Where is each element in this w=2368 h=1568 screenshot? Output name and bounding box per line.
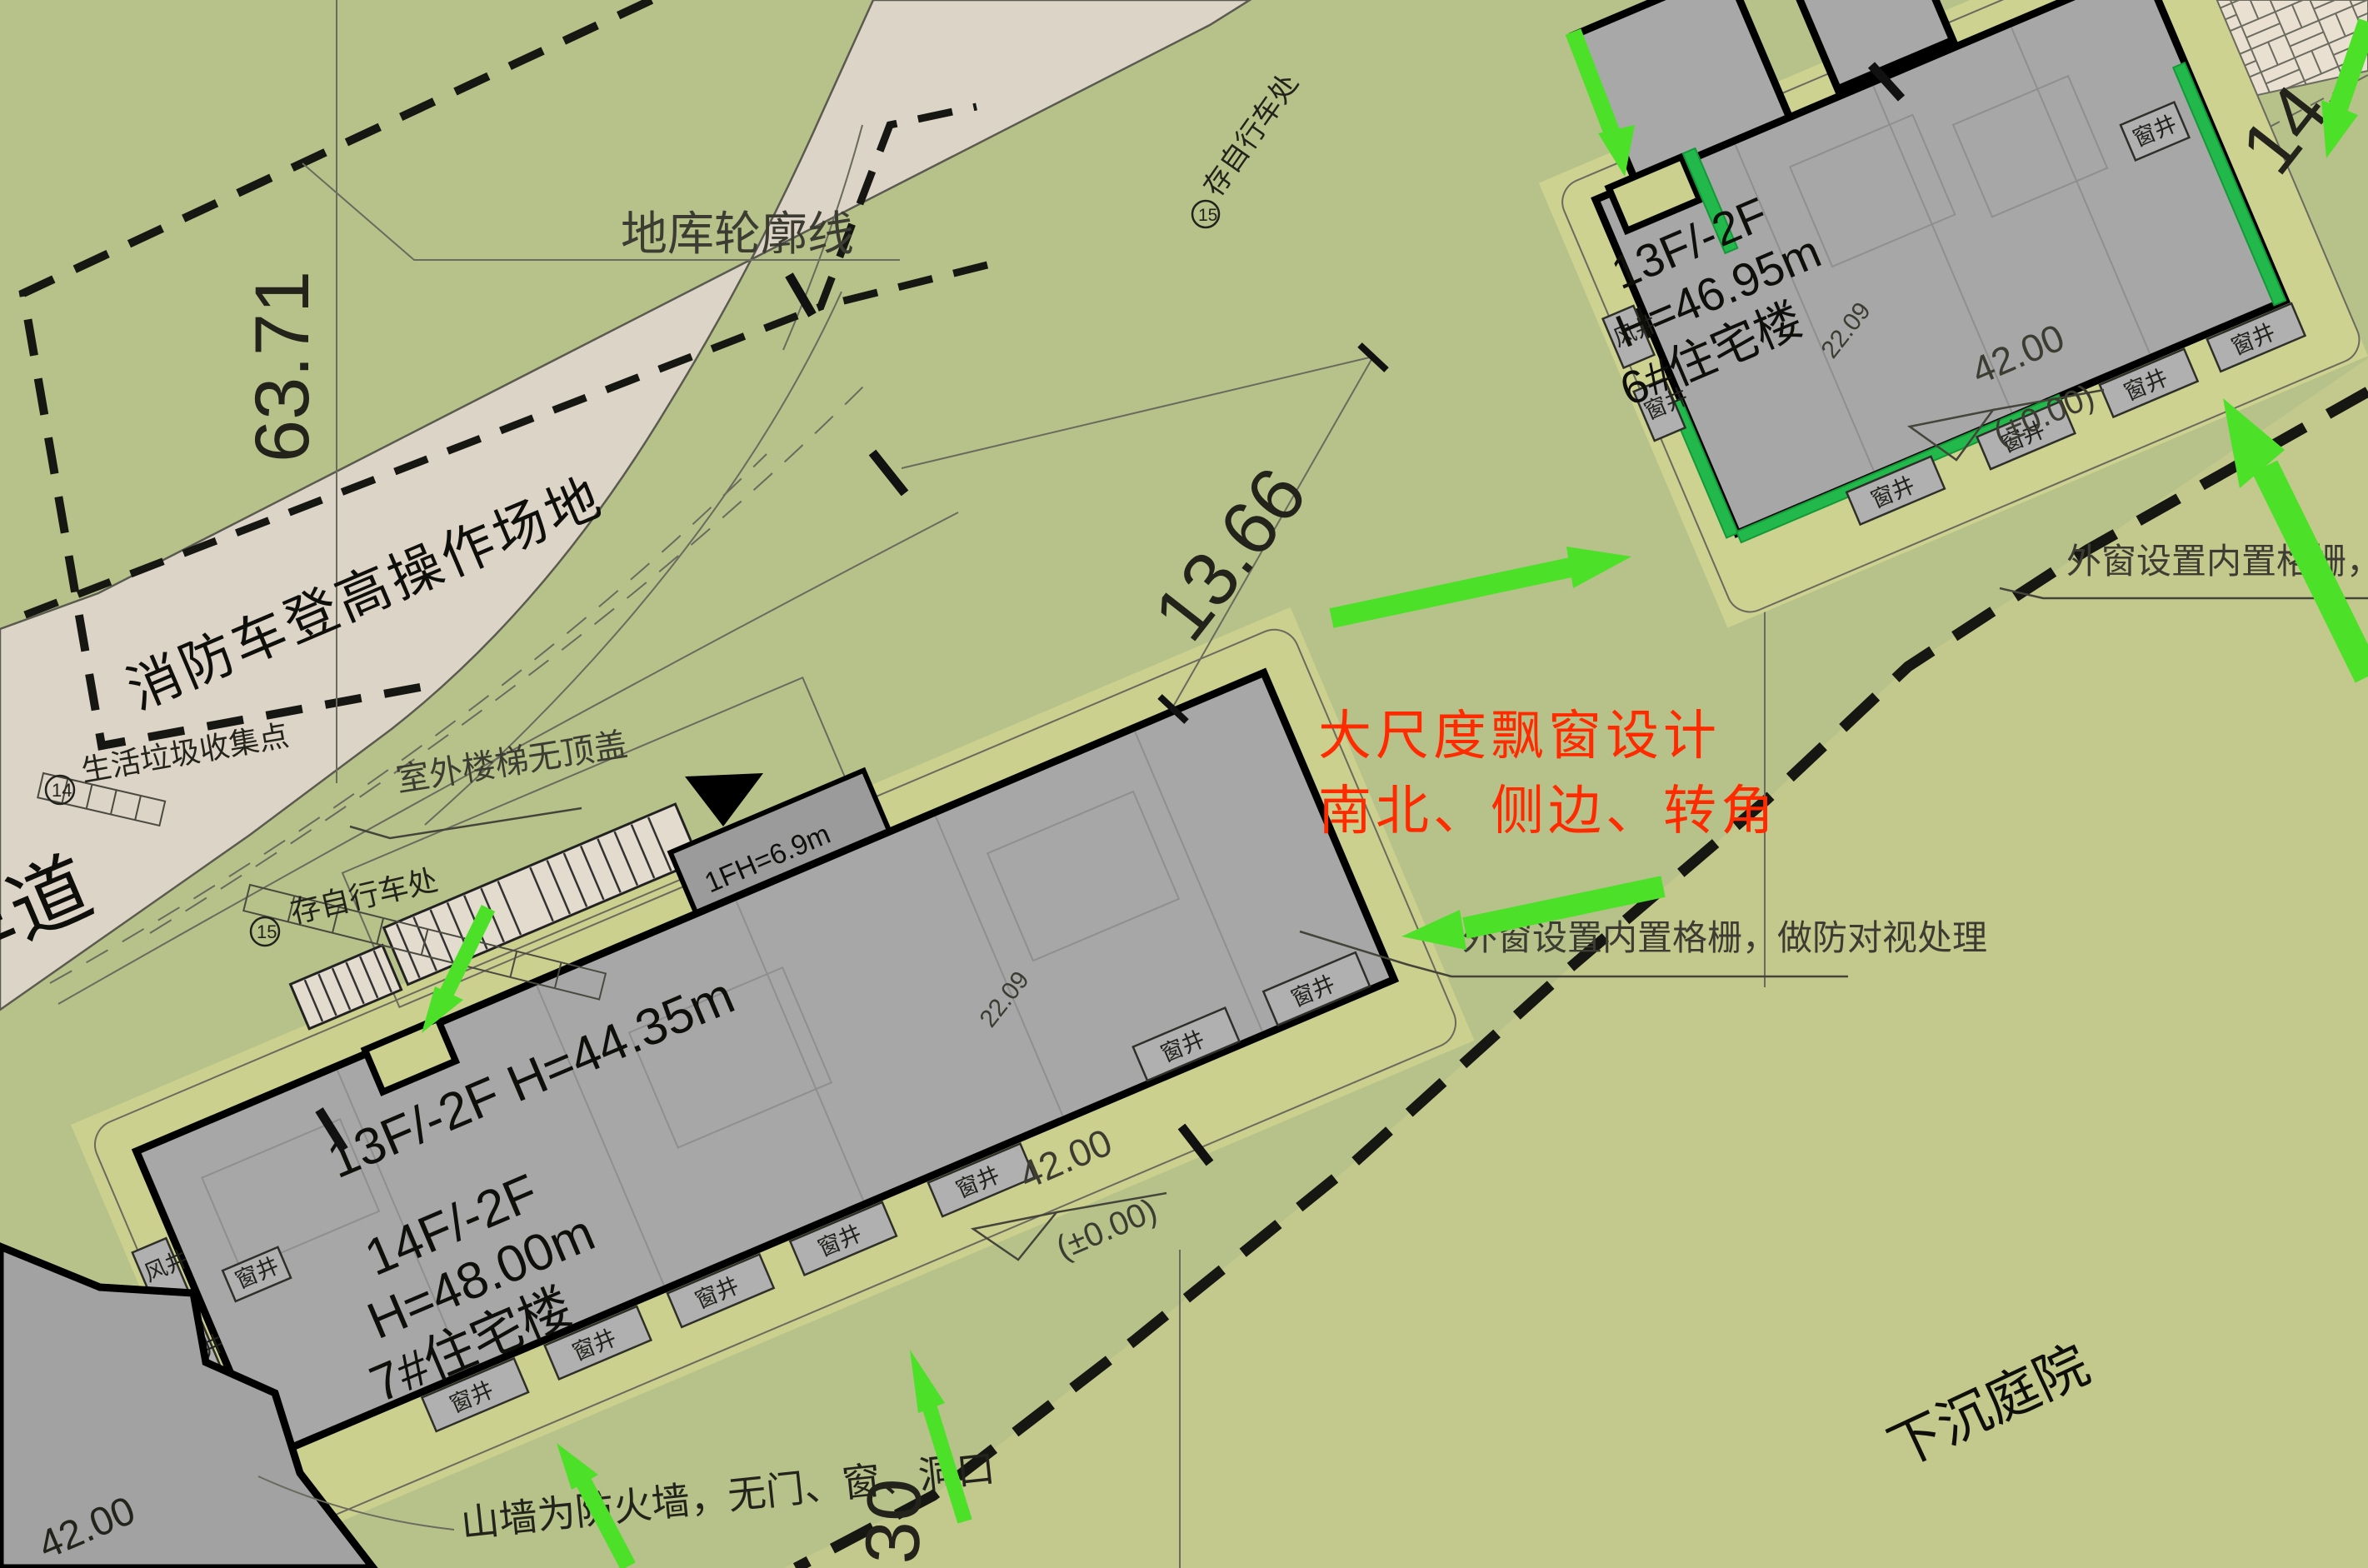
louver-note-mid: 外窗设置内置格栅，做防对视处理 — [1462, 918, 1987, 957]
red-note-line2: 南北、侧边、转角 — [1318, 781, 1778, 841]
bike-parking-badge-number: 15 — [257, 921, 277, 942]
waste-point-badge-number: 14 — [52, 780, 72, 801]
site-plan-drawing: 窗井 窗井 窗井 窗井 窗井 窗井 窗井 风井 风井 13F/-2F H=44.… — [0, 0, 2368, 1568]
red-note-line1: 大尺度飘窗设计 — [1318, 706, 1721, 766]
site-plan-canvas: 窗井 窗井 窗井 窗井 窗井 窗井 窗井 风井 风井 13F/-2F H=44.… — [0, 0, 2368, 1568]
bike-parking-top-badge-number: 15 — [1198, 206, 1217, 225]
basement-outline-label: 地库轮廓线 — [621, 207, 854, 260]
basement-width-dimension: 63.71 — [240, 271, 325, 462]
